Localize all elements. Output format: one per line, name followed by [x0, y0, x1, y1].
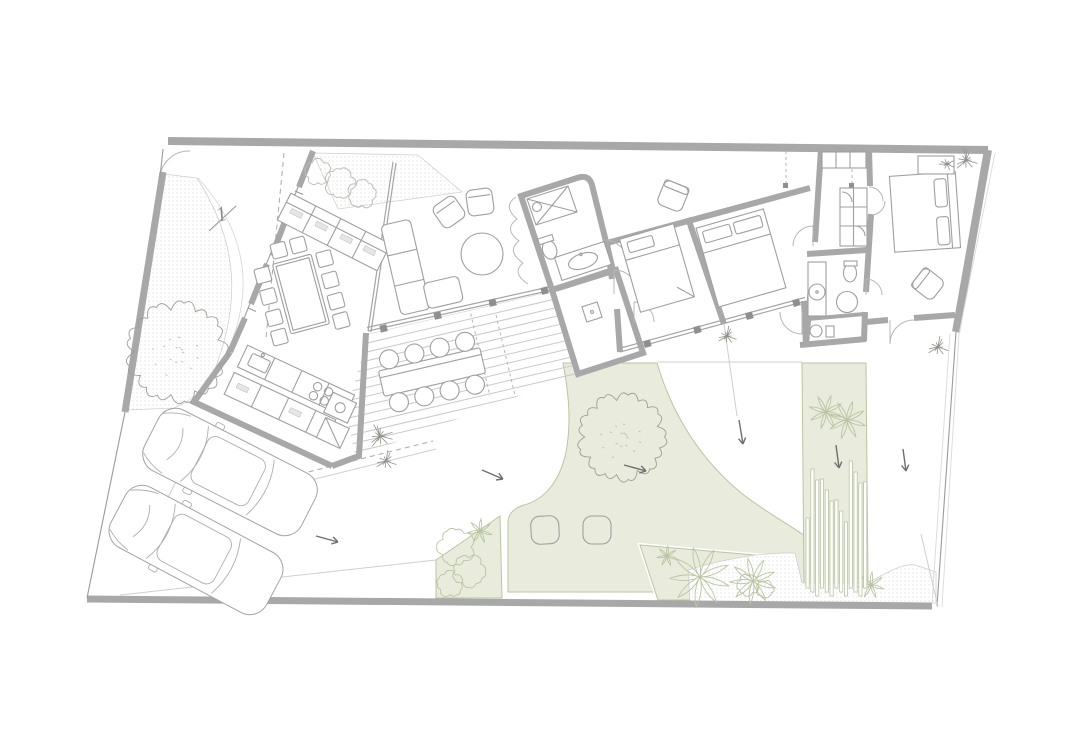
spiky-plant — [929, 336, 949, 354]
spiky-plant — [719, 326, 737, 343]
master-bedroom-south-wall — [866, 315, 955, 322]
landscape-green — [436, 363, 868, 600]
armchair-2 — [465, 187, 494, 216]
parked-cars — [100, 397, 326, 625]
boundary-wall-north — [168, 141, 988, 150]
coffee-table — [461, 233, 503, 275]
slope-arrow — [902, 449, 909, 471]
floor-plan-drawing: 1 — [0, 0, 1080, 738]
patio-armchair — [656, 179, 690, 213]
walk-in-closet — [822, 152, 867, 246]
slope-arrow — [739, 420, 746, 444]
outdoor-dining-table — [374, 330, 490, 415]
master-bedroom — [889, 156, 960, 301]
master-armchair — [910, 267, 945, 302]
bed-2 — [696, 209, 786, 307]
slope-arrow — [316, 536, 338, 544]
floor-plan-sheet: 1 — [0, 0, 1080, 738]
bathroom-2 — [808, 261, 858, 337]
boundary-wall-east — [956, 150, 988, 332]
bed-1 — [620, 224, 695, 312]
slope-arrow — [482, 470, 503, 480]
armchair-1 — [431, 194, 467, 230]
shrub-bed-triangle — [436, 516, 502, 598]
